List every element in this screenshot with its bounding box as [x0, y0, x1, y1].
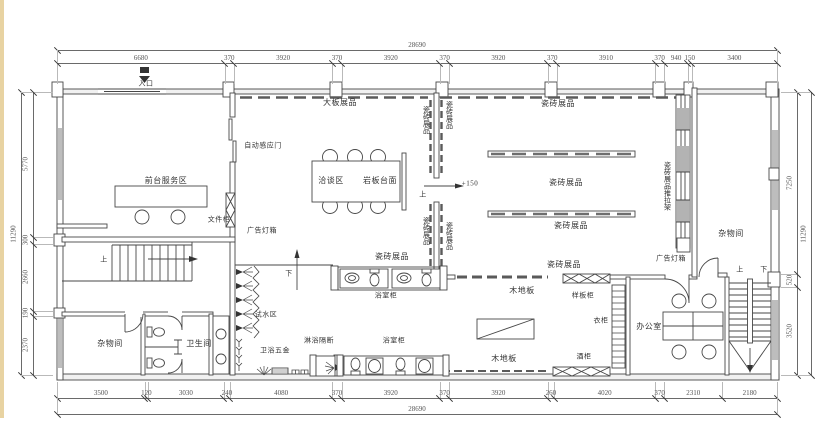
front-desk [115, 186, 207, 224]
bath-hardware [257, 355, 340, 376]
stone-slab [402, 153, 406, 210]
bath-cabinet-rows [331, 266, 449, 376]
faucet-icons [236, 339, 242, 371]
level-arrow-icon [455, 184, 464, 189]
file-cabinet [226, 193, 235, 227]
tile-display-racks [488, 151, 635, 217]
shower-head-icons [236, 269, 243, 331]
floorplan-canvas: 6680370392037039203703920370391037094015… [0, 0, 830, 446]
entrance [98, 67, 166, 95]
down-arrow-icon [295, 249, 300, 258]
water-test-area [236, 266, 259, 371]
stairs-right [729, 279, 771, 373]
stairs-up-arrow-icon [189, 256, 198, 262]
storage-room-door [699, 258, 718, 277]
entrance-arrow-icon [139, 76, 150, 83]
tile-sliding-rack [676, 95, 690, 252]
wardrobe [612, 285, 625, 368]
office [663, 279, 723, 359]
meeting-table [312, 150, 406, 214]
display-platform [477, 319, 534, 339]
entrance-marker-icon [140, 67, 149, 73]
floorplan-linework [0, 0, 830, 446]
stairs-bottom-left [62, 242, 198, 281]
stairs-down-arrow-icon [747, 365, 753, 373]
